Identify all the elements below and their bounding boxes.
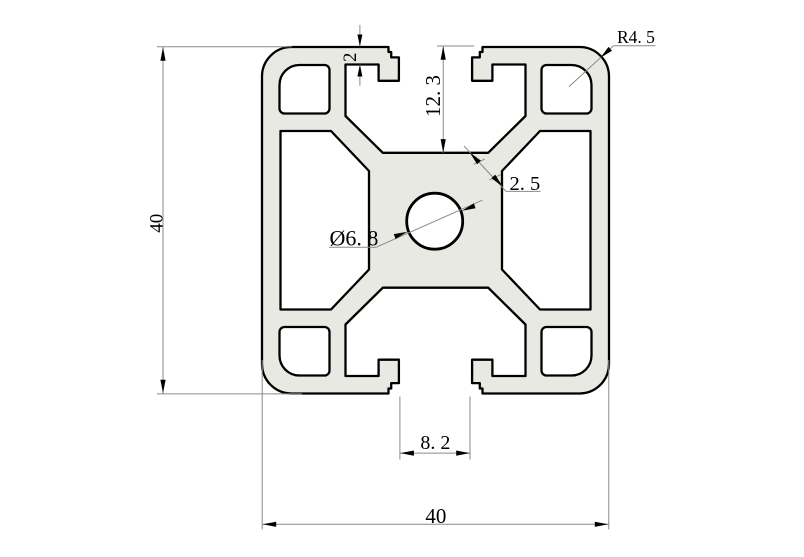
svg-text:2. 5: 2. 5 (510, 173, 541, 195)
svg-text:Ø6. 8: Ø6. 8 (330, 225, 379, 250)
svg-text:R4. 5: R4. 5 (617, 27, 655, 47)
svg-text:8. 2: 8. 2 (420, 432, 450, 454)
svg-text:2: 2 (341, 53, 361, 62)
svg-text:40: 40 (425, 504, 446, 528)
svg-text:40: 40 (146, 214, 167, 233)
svg-text:12. 3: 12. 3 (421, 75, 445, 117)
